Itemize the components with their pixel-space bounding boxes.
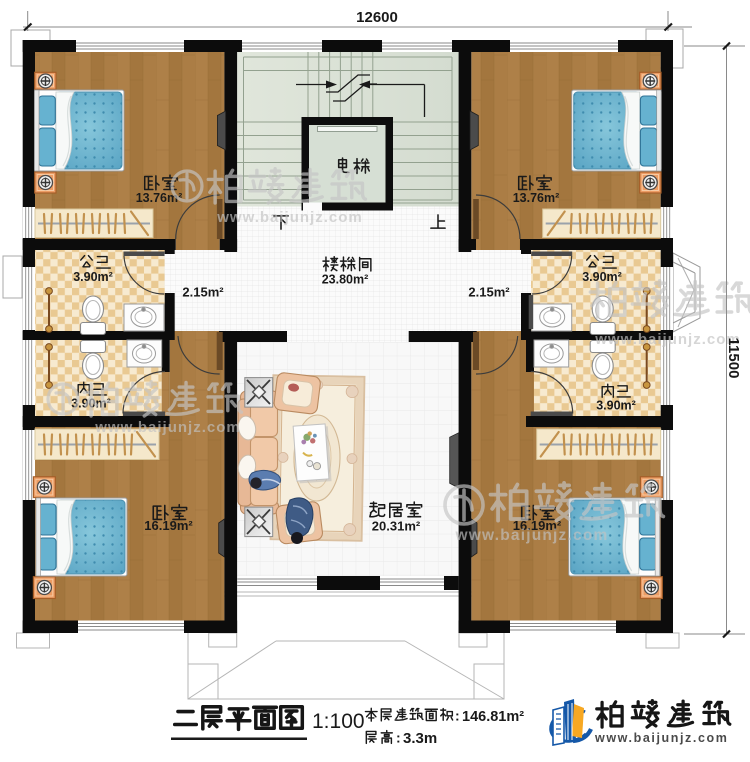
svg-text:12600: 12600 bbox=[356, 9, 398, 26]
svg-text:1:100: 1:100 bbox=[312, 710, 365, 733]
svg-text:2.15m²: 2.15m² bbox=[468, 284, 510, 299]
svg-text::: : bbox=[455, 708, 460, 724]
svg-text:www.baijunjz.com: www.baijunjz.com bbox=[455, 527, 609, 544]
svg-text:3.90m²: 3.90m² bbox=[596, 399, 636, 413]
svg-text:16.19m²: 16.19m² bbox=[144, 518, 193, 533]
svg-text:2.15m²: 2.15m² bbox=[182, 284, 224, 299]
svg-text:3.90m²: 3.90m² bbox=[73, 270, 113, 284]
svg-text:www.baijunjz.com: www.baijunjz.com bbox=[94, 419, 240, 436]
svg-text::: : bbox=[396, 730, 401, 746]
svg-text:23.80m²: 23.80m² bbox=[322, 272, 369, 286]
svg-text:146.81m²: 146.81m² bbox=[462, 709, 524, 725]
svg-text:3.3m: 3.3m bbox=[403, 730, 437, 747]
svg-text:13.76m²: 13.76m² bbox=[513, 191, 560, 205]
svg-text:11500: 11500 bbox=[725, 338, 742, 379]
svg-text:www.baijunjz.com: www.baijunjz.com bbox=[594, 731, 728, 745]
svg-text:www.baijunjz.com: www.baijunjz.com bbox=[216, 209, 362, 226]
svg-text:20.31m²: 20.31m² bbox=[372, 519, 421, 534]
svg-text:www.baijunjz.com: www.baijunjz.com bbox=[594, 331, 740, 348]
